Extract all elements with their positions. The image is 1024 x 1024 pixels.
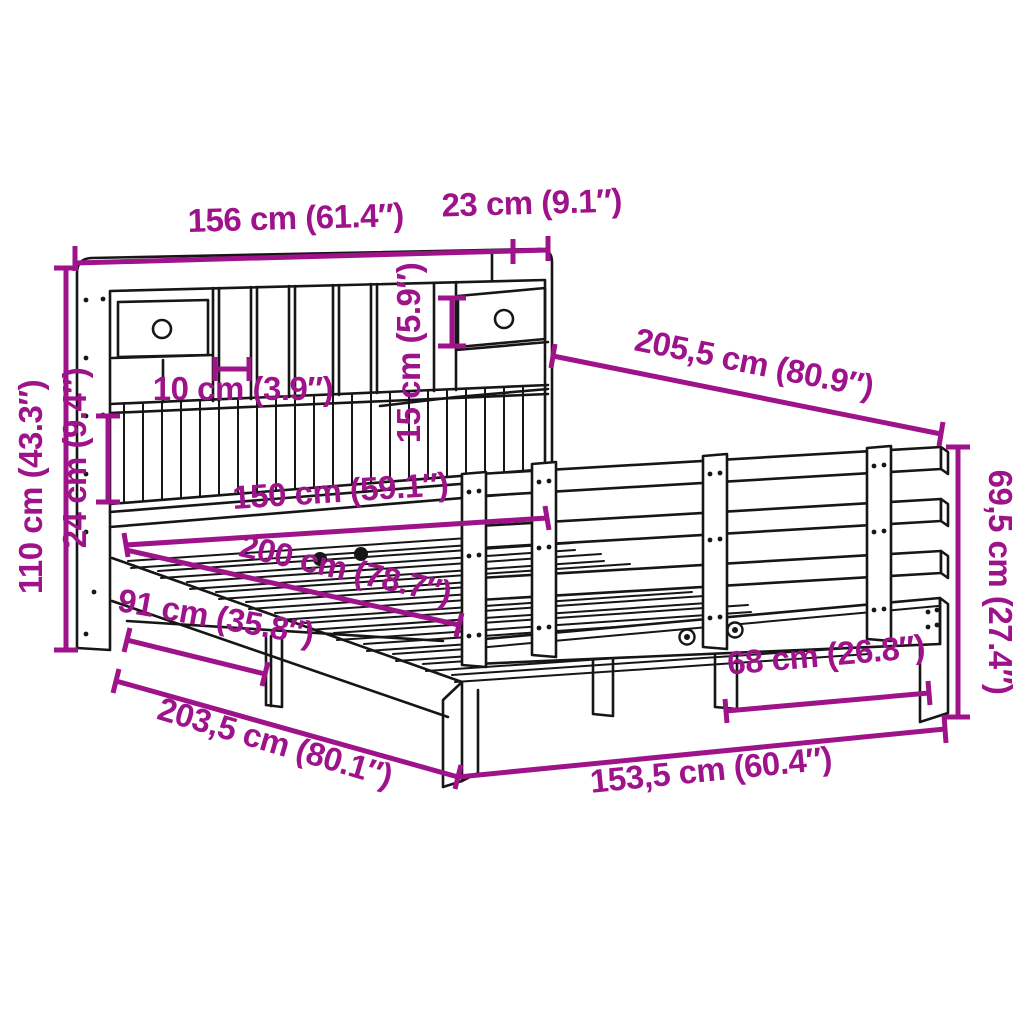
dim-total-length: 205,5 cm (80.9″) [551, 321, 943, 446]
dim-label-headboard-depth: 23 cm (9.1″) [441, 181, 622, 223]
drawer-knob-right [495, 310, 513, 328]
dim-label-frame-width: 153,5 cm (60.4″) [588, 739, 833, 800]
dim-label-bed-width: 150 cm (59.1″) [231, 465, 449, 516]
dim-label-cubby-width: 10 cm (3.9″) [153, 370, 333, 407]
dim-label-footboard-height: 69,5 cm (27.4″) [982, 470, 1019, 695]
drawer-knob-left [153, 320, 171, 338]
dim-label-total-length: 205,5 cm (80.9″) [632, 321, 877, 405]
dim-footboard-height: 69,5 cm (27.4″) [946, 447, 1019, 717]
dim-label-headboard-height: 110 cm (43.3″) [12, 380, 49, 594]
dim-cubby-width: 10 cm (3.9″) [153, 357, 333, 407]
dim-foot-clearance: 68 cm (26.8″) [725, 627, 930, 723]
diagram-canvas: 156 cm (61.4″) 23 cm (9.1″) 110 cm (43.3… [0, 0, 1024, 1024]
dimension-diagram-svg: 156 cm (61.4″) 23 cm (9.1″) 110 cm (43.3… [0, 0, 1024, 1024]
dim-label-shelf-section-height: 24 cm (9.4″) [56, 368, 93, 548]
dim-frame-width: 153,5 cm (60.4″) [458, 715, 946, 800]
dim-label-headboard-width: 156 cm (61.4″) [187, 196, 404, 239]
dim-side-clearance: 91 cm (35.8″) [115, 581, 317, 686]
dim-headboard-depth: 23 cm (9.1″) [441, 181, 622, 223]
dim-frame-length: 203,5 cm (80.1″) [113, 669, 461, 794]
dim-label-drawer-height: 15 cm (5.9″) [390, 263, 427, 443]
